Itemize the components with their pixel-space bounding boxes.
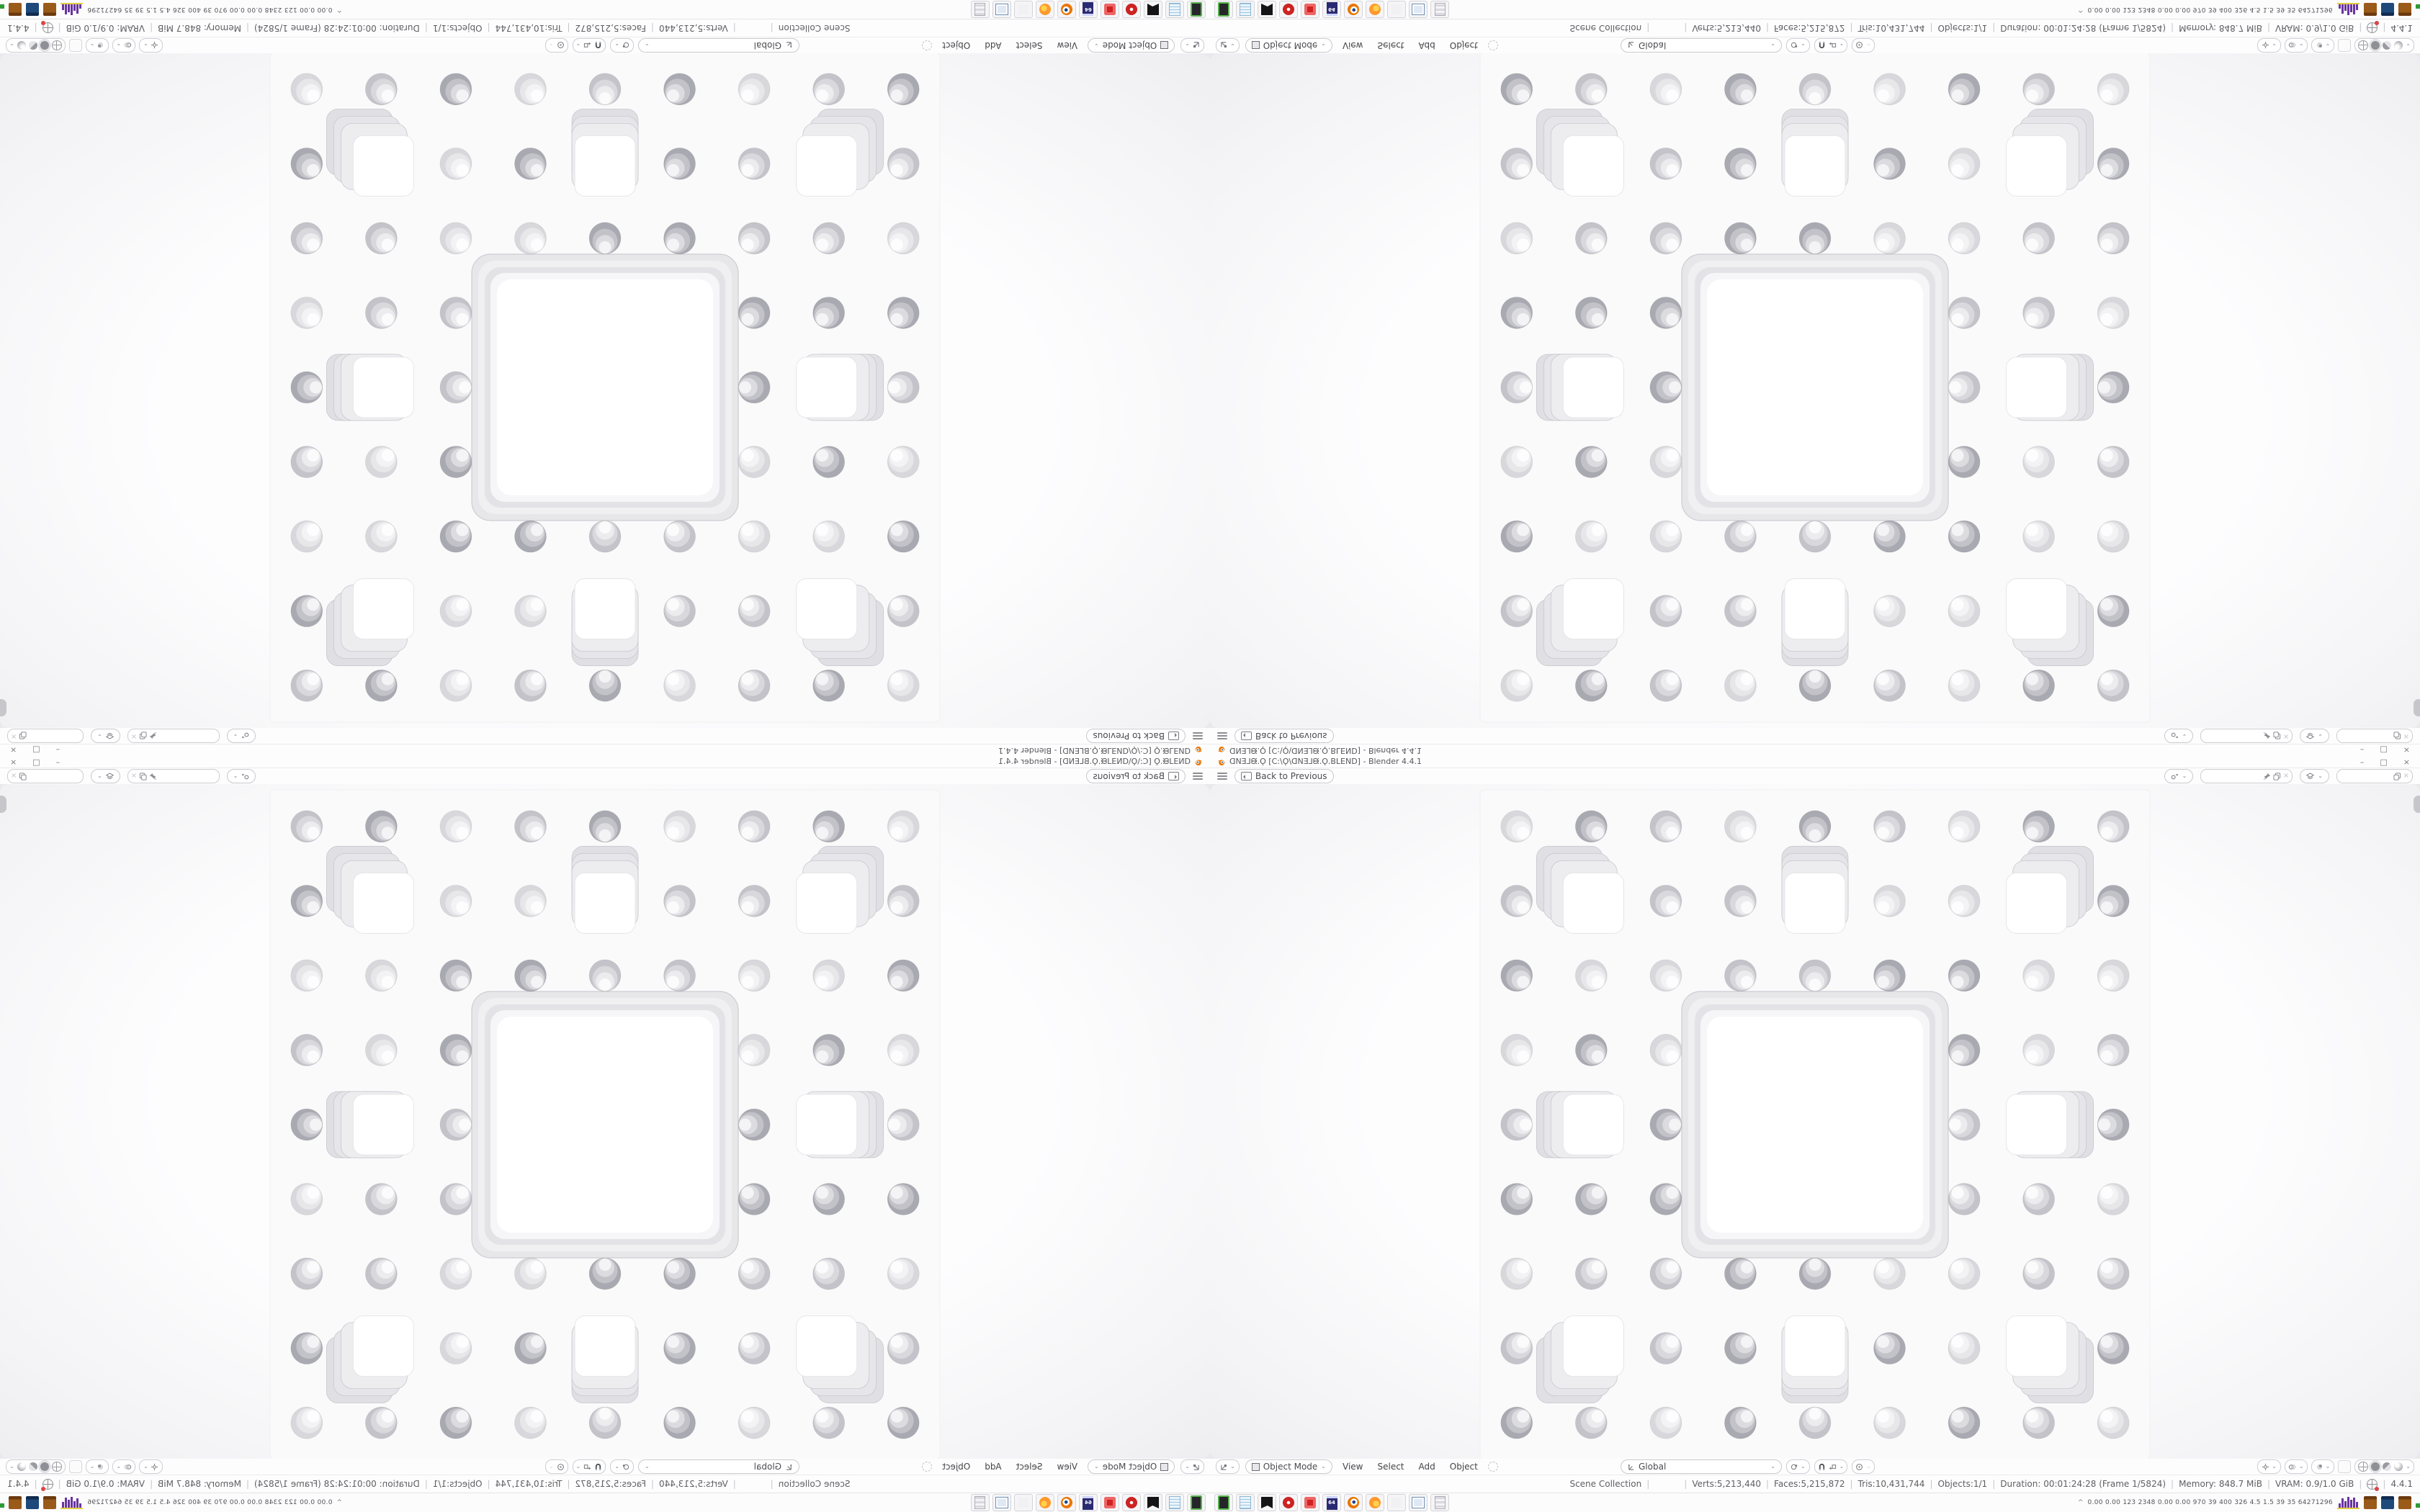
tray-histogram-icon[interactable] xyxy=(60,3,83,16)
minimize-button[interactable]: – xyxy=(56,747,60,755)
proportional-editing-icon[interactable] xyxy=(557,42,565,50)
blender-logo-icon xyxy=(1217,758,1225,766)
transform-orientation-dropdown[interactable]: Global ⌄ xyxy=(638,38,799,53)
shading-material-button[interactable] xyxy=(2383,1462,2391,1471)
tray-cpu-bars-icon[interactable] xyxy=(0,1498,4,1508)
window-title: ᗡNƎ⅃ᙠ.Ǫ [C:\Ǫ\ᗡNƎ⅃ᙠ.Ǫ.BLEND] - Blender 4… xyxy=(1229,745,1422,755)
close-button[interactable]: × xyxy=(2403,758,2410,766)
stat-duration: Duration: 00:01:24:28 (Frame 1/5824) xyxy=(254,1479,420,1489)
chevron-down-icon[interactable]: ⌄ xyxy=(2299,42,2304,48)
viewport-header: ⌄ Object Mode ⌄ View Select Add Object G… xyxy=(1210,37,2420,53)
tray-network-icon[interactable] xyxy=(2381,3,2394,16)
menu-view[interactable]: View xyxy=(1053,40,1082,50)
blender-taskbar-icon[interactable] xyxy=(1344,1494,1363,1511)
3d-viewport[interactable] xyxy=(1210,53,2420,728)
mode-dropdown[interactable]: Object Mode ⌄ xyxy=(1088,1459,1175,1474)
blender-topbar: Back to Previous ⌄ × ⌄ × xyxy=(1210,728,2420,744)
chevron-down-icon: ⌄ xyxy=(614,1464,619,1470)
pin-icon[interactable] xyxy=(2263,732,2271,740)
magnet-icon[interactable] xyxy=(1818,42,1826,50)
render-pass-toggle[interactable] xyxy=(69,39,82,52)
scene-name-field[interactable]: × xyxy=(127,729,220,743)
gizmos-dropdown[interactable]: ⌄ xyxy=(139,38,163,53)
stat-vram: VRAM: 0.9/1.0 GiB xyxy=(2275,23,2354,33)
chevron-down-icon[interactable]: ⌄ xyxy=(576,1464,581,1470)
tray-disk2-icon[interactable] xyxy=(9,3,22,16)
pivot-point-dropdown[interactable]: ⌄ xyxy=(610,1459,634,1474)
mode-transfer-icon[interactable] xyxy=(922,1462,932,1472)
maximize-button[interactable]: □ xyxy=(2380,758,2387,766)
separator: | xyxy=(150,23,153,33)
tray-expander-icon[interactable]: ^ xyxy=(336,6,342,13)
calculator-taskbar-icon[interactable] xyxy=(971,1494,990,1511)
maximize-button[interactable]: □ xyxy=(2380,747,2387,755)
calculator-taskbar-icon[interactable] xyxy=(1430,1,1449,18)
pivot-point-dropdown[interactable]: ⌄ xyxy=(1786,1459,1810,1474)
tray-histogram-icon[interactable] xyxy=(2337,1496,2359,1509)
chevron-down-icon[interactable]: ⌄ xyxy=(1866,42,1871,48)
mode-dropdown[interactable]: Object Mode ⌄ xyxy=(1245,1459,1332,1474)
gizmo-icon xyxy=(151,1463,158,1471)
tray-cpu-bars-icon[interactable] xyxy=(2416,4,2420,14)
chevron-down-icon: ⌄ xyxy=(1230,42,1235,48)
remove-layer-icon[interactable]: × xyxy=(2403,732,2409,739)
title-bar[interactable]: ᗡNƎ⅃ᙠ.Ǫ [C:\Ǫ\ᗡNƎ⅃ᙠ.Ǫ.BLEND] - Blender 4… xyxy=(0,756,1210,768)
chevron-down-icon[interactable]: ⌄ xyxy=(1866,1464,1871,1470)
maximize-button[interactable]: □ xyxy=(32,747,40,755)
xray-dropdown[interactable]: ⌄ xyxy=(86,1459,109,1474)
scene-name-field[interactable]: × xyxy=(2200,729,2293,743)
unlink-scene-icon[interactable]: × xyxy=(131,773,137,780)
shading-wireframe-button[interactable] xyxy=(2358,1462,2368,1472)
sidebar-collapse-arrow[interactable] xyxy=(0,796,6,813)
gizmos-dropdown[interactable]: ⌄ xyxy=(2257,1459,2281,1474)
blender-taskbar-icon[interactable] xyxy=(1057,1,1076,18)
menu-icon[interactable] xyxy=(1193,773,1203,780)
separator: | xyxy=(2171,23,2174,33)
system-monitor-taskbar-icon[interactable] xyxy=(1409,1,1428,18)
scene-icon xyxy=(2171,732,2179,740)
sidebar-collapse-arrow[interactable] xyxy=(2414,699,2420,716)
view-layer-icon xyxy=(2306,773,2314,780)
tray-cpu-bars-icon[interactable] xyxy=(0,4,4,14)
menu-select[interactable]: Select xyxy=(1011,40,1047,50)
blank-taskbar-icon[interactable] xyxy=(1387,1494,1406,1511)
viewport-header: ⌄ Object Mode ⌄ View Select Add Object G… xyxy=(0,37,1210,53)
new-layer-icon[interactable] xyxy=(2393,732,2401,740)
separator: | xyxy=(488,1479,490,1489)
view-layer-selector-button[interactable]: ⌄ xyxy=(2300,729,2329,743)
inkscape-taskbar-icon[interactable] xyxy=(1258,1,1276,18)
menu-view[interactable]: View xyxy=(1338,1462,1367,1472)
tray-network-icon[interactable] xyxy=(26,3,39,16)
firefox-taskbar-icon[interactable] xyxy=(1036,1494,1054,1511)
minimize-button[interactable]: – xyxy=(2360,758,2365,766)
shading-solid-button[interactable] xyxy=(40,1462,49,1471)
3d-viewport[interactable] xyxy=(0,784,1210,1459)
new-layer-icon[interactable] xyxy=(2393,773,2401,780)
close-button[interactable]: × xyxy=(10,747,17,755)
notepad-taskbar-icon[interactable] xyxy=(1236,1494,1255,1511)
shading-wireframe-button[interactable] xyxy=(52,40,62,50)
menger-sponge-render xyxy=(1479,789,2151,1459)
stat-faces: Faces:5,215,872 xyxy=(575,23,646,33)
stat-faces: Faces:5,215,872 xyxy=(1774,1479,1845,1489)
firefox-taskbar-icon[interactable] xyxy=(1366,1,1384,18)
separator: | xyxy=(1646,23,1649,33)
separator: | xyxy=(651,1479,654,1489)
menger-sponge-render xyxy=(269,53,941,723)
pin-icon[interactable] xyxy=(2263,773,2271,780)
editor-type-button[interactable]: ⌄ xyxy=(1216,38,1240,53)
viewport-header: ⌄ Object Mode ⌄ View Select Add Object G… xyxy=(1210,1459,2420,1475)
chevron-down-icon: ⌄ xyxy=(143,1464,148,1470)
blender-logo-icon xyxy=(1195,747,1203,755)
red-gear-taskbar-icon[interactable] xyxy=(1301,1,1319,18)
menu-select[interactable]: Select xyxy=(1373,40,1408,50)
red-gear-taskbar-icon[interactable] xyxy=(1301,1494,1319,1511)
os-taskbar: 64 ^ 0.00 0.00 123 2348 0.00 0.00 970 39… xyxy=(0,1493,1210,1512)
system-monitor-taskbar-icon[interactable] xyxy=(992,1494,1011,1511)
chevron-down-icon[interactable]: ⌄ xyxy=(576,42,581,48)
chevron-down-icon[interactable]: ⌄ xyxy=(1839,1464,1845,1470)
minimize-button[interactable]: – xyxy=(56,758,60,766)
menu-icon[interactable] xyxy=(1193,732,1203,739)
new-scene-icon[interactable] xyxy=(2273,732,2281,740)
tray-cpu-bars-icon[interactable] xyxy=(2416,1498,2420,1508)
inkscape-taskbar-icon[interactable] xyxy=(1144,1494,1162,1511)
shading-solid-button[interactable] xyxy=(2371,1462,2380,1471)
menu-add[interactable]: Add xyxy=(980,40,1005,50)
menu-select[interactable]: Select xyxy=(1011,1462,1047,1472)
blender-logo-icon xyxy=(1217,747,1225,755)
chevron-down-icon: ⌄ xyxy=(2318,733,2323,739)
shading-material-button[interactable] xyxy=(29,1462,37,1471)
tray-histogram-icon[interactable] xyxy=(60,1496,83,1509)
red-media-taskbar-icon[interactable] xyxy=(1122,1494,1141,1511)
tray-network-icon[interactable] xyxy=(2381,1496,2394,1509)
stat-tris: Tris:10,431,744 xyxy=(1858,1479,1925,1489)
render-pass-toggle[interactable] xyxy=(69,1460,82,1473)
mode-transfer-icon[interactable] xyxy=(1488,1462,1498,1472)
shading-rendered-button[interactable] xyxy=(17,1462,26,1471)
notepad-taskbar-icon[interactable] xyxy=(1165,1494,1184,1511)
back-to-previous-button[interactable]: Back to Previous xyxy=(1086,769,1186,783)
snap-target-icon[interactable] xyxy=(1829,42,1837,50)
xray-dropdown[interactable]: ⌄ xyxy=(2311,38,2335,53)
orientation-axes-icon xyxy=(785,42,793,50)
snap-target-icon[interactable] xyxy=(583,1463,591,1471)
back-to-previous-button[interactable]: Back to Previous xyxy=(1234,769,1334,783)
overlays-icon[interactable] xyxy=(124,1463,132,1471)
menu-add[interactable]: Add xyxy=(980,1462,1005,1472)
editor-3d-viewport-icon xyxy=(1192,1463,1200,1471)
unlink-scene-icon[interactable]: × xyxy=(2283,773,2289,780)
floppy-64-taskbar-icon[interactable]: 64 xyxy=(1079,1494,1098,1511)
view-layer-selector-button[interactable]: ⌄ xyxy=(91,729,120,743)
back-to-previous-label: Back to Previous xyxy=(1093,771,1165,781)
sidebar-collapse-arrow[interactable] xyxy=(2414,796,2420,813)
menu-view[interactable]: View xyxy=(1053,1462,1082,1472)
scene-name-field[interactable]: × xyxy=(127,769,220,783)
overlays-icon[interactable] xyxy=(124,42,132,50)
tray-disk2-icon[interactable] xyxy=(2398,1496,2411,1509)
close-button[interactable]: × xyxy=(10,758,17,766)
snap-target-icon[interactable] xyxy=(583,42,591,50)
view-layer-name-field[interactable]: × xyxy=(7,769,84,783)
3d-viewport[interactable] xyxy=(1210,784,2420,1459)
floppy-64-taskbar-icon[interactable]: 64 xyxy=(1079,1,1098,18)
mode-dropdown[interactable]: Object Mode ⌄ xyxy=(1088,38,1175,53)
notification-dot xyxy=(2375,1487,2379,1491)
audio-device-taskbar-icon[interactable] xyxy=(1214,1494,1233,1511)
new-layer-icon[interactable] xyxy=(19,773,27,780)
shading-solid-button[interactable] xyxy=(2371,41,2380,50)
xray-dropdown[interactable]: ⌄ xyxy=(86,38,109,53)
view-layer-selector-button[interactable]: ⌄ xyxy=(2300,769,2329,783)
shading-solid-button[interactable] xyxy=(40,41,49,50)
chevron-down-icon: ⌄ xyxy=(1321,1464,1326,1470)
separator: | xyxy=(1992,1479,1995,1489)
red-media-taskbar-icon[interactable] xyxy=(1122,1,1141,18)
mode-transfer-icon[interactable] xyxy=(922,40,932,50)
close-button[interactable]: × xyxy=(2403,747,2410,755)
menu-object[interactable]: Object xyxy=(938,1462,974,1472)
pin-icon[interactable] xyxy=(149,773,157,780)
view-layer-name-field[interactable]: × xyxy=(7,729,84,743)
menu-icon[interactable] xyxy=(1217,773,1227,780)
proportional-editing-icon[interactable] xyxy=(557,1463,565,1471)
tray-disk-icon[interactable] xyxy=(43,3,56,16)
separator: | xyxy=(733,1479,736,1489)
unlink-scene-icon[interactable]: × xyxy=(131,732,137,739)
menu-add[interactable]: Add xyxy=(1415,1462,1440,1472)
floppy-64-taskbar-icon[interactable]: 64 xyxy=(1322,1,1341,18)
shading-rendered-button[interactable] xyxy=(2394,41,2403,50)
view-layer-selector-button[interactable]: ⌄ xyxy=(91,769,120,783)
back-icon xyxy=(1168,772,1179,780)
menu-icon[interactable] xyxy=(1217,732,1227,739)
sidebar-collapse-arrow[interactable] xyxy=(0,699,6,716)
tray-disk-icon[interactable] xyxy=(43,1496,56,1509)
view-layer-name-field[interactable]: × xyxy=(2336,729,2413,743)
extensions-update-icon[interactable] xyxy=(2367,1479,2378,1490)
chevron-down-icon[interactable]: ⌄ xyxy=(9,42,14,48)
maximize-button[interactable]: □ xyxy=(32,758,40,766)
chevron-down-icon: ⌄ xyxy=(233,733,238,739)
scene-selector-button[interactable]: ⌄ xyxy=(227,769,256,783)
snap-target-icon[interactable] xyxy=(1829,1463,1837,1471)
remove-layer-icon[interactable]: × xyxy=(11,773,17,780)
unlink-scene-icon[interactable]: × xyxy=(2283,732,2289,739)
proportional-editing-icon[interactable] xyxy=(1855,1463,1863,1471)
overlays-icon[interactable] xyxy=(2288,1463,2296,1471)
scene-name-field[interactable]: × xyxy=(2200,769,2293,783)
separator: | xyxy=(1930,1479,1932,1489)
firefox-taskbar-icon[interactable] xyxy=(1366,1494,1384,1511)
menu-select[interactable]: Select xyxy=(1373,1462,1408,1472)
shading-material-button[interactable] xyxy=(29,41,37,50)
tray-expander-icon[interactable]: ^ xyxy=(2078,6,2084,13)
chevron-down-icon: ⌄ xyxy=(2326,1464,2331,1470)
blank-taskbar-icon[interactable] xyxy=(1387,1,1406,18)
menger-sponge-render xyxy=(269,789,941,1459)
render-pass-toggle[interactable] xyxy=(2338,1460,2351,1473)
separator: | xyxy=(1766,1479,1769,1489)
system-monitor-taskbar-icon[interactable] xyxy=(992,1,1011,18)
blender-version: 4.4.1 xyxy=(7,23,30,33)
chevron-down-icon[interactable]: ⌄ xyxy=(2299,1464,2304,1470)
title-bar[interactable]: ᗡNƎ⅃ᙠ.Ǫ [C:\Ǫ\ᗡNƎ⅃ᙠ.Ǫ.BLEND] - Blender 4… xyxy=(0,744,1210,756)
view-layer-name-field[interactable]: × xyxy=(2336,769,2413,783)
separator: | xyxy=(2359,23,2362,33)
remove-layer-icon[interactable]: × xyxy=(11,732,17,739)
tray-disk-icon[interactable] xyxy=(2364,1496,2377,1509)
chevron-down-icon[interactable]: ⌄ xyxy=(549,1464,554,1470)
blank-taskbar-icon[interactable] xyxy=(1014,1,1033,18)
inkscape-taskbar-icon[interactable] xyxy=(1144,1,1162,18)
scene-selector-button[interactable]: ⌄ xyxy=(227,729,256,743)
chevron-down-icon[interactable]: ⌄ xyxy=(116,42,121,48)
separator: | xyxy=(651,23,654,33)
blender-taskbar-icon[interactable] xyxy=(1057,1494,1076,1511)
red-media-taskbar-icon[interactable] xyxy=(1279,1494,1298,1511)
chevron-down-icon[interactable]: ⌄ xyxy=(1839,42,1845,48)
tray-expander-icon[interactable]: ^ xyxy=(336,1499,342,1506)
tray-network-icon[interactable] xyxy=(26,1496,39,1509)
extensions-update-icon[interactable] xyxy=(2367,23,2378,34)
menu-object[interactable]: Object xyxy=(1446,1462,1482,1472)
mode-transfer-icon[interactable] xyxy=(1488,40,1498,50)
magnet-icon[interactable] xyxy=(594,1463,602,1471)
audio-device-taskbar-icon[interactable] xyxy=(1214,1,1233,18)
new-layer-icon[interactable] xyxy=(19,732,27,740)
active-collection: Scene Collection xyxy=(1569,23,1641,33)
new-scene-icon[interactable] xyxy=(139,773,147,780)
chevron-down-icon: ⌄ xyxy=(1185,1464,1190,1470)
title-bar[interactable]: ᗡNƎ⅃ᙠ.Ǫ [C:\Ǫ\ᗡNƎ⅃ᙠ.Ǫ.BLEND] - Blender 4… xyxy=(1210,744,2420,756)
minimize-button[interactable]: – xyxy=(2360,747,2365,755)
remove-layer-icon[interactable]: × xyxy=(2403,773,2409,780)
notification-dot xyxy=(41,22,45,26)
render-pass-toggle[interactable] xyxy=(2338,39,2351,52)
menu-object[interactable]: Object xyxy=(1446,40,1482,50)
stat-objects: Objects:1/1 xyxy=(433,23,483,33)
chevron-down-icon[interactable]: ⌄ xyxy=(9,1464,14,1470)
taskbar-apps: 64 xyxy=(971,1494,1206,1511)
editor-type-button[interactable]: ⌄ xyxy=(1180,1459,1204,1474)
audio-device-taskbar-icon[interactable] xyxy=(1187,1,1206,18)
tray-disk-icon[interactable] xyxy=(2364,3,2377,16)
audio-device-taskbar-icon[interactable] xyxy=(1187,1494,1206,1511)
tray-disk2-icon[interactable] xyxy=(2398,3,2411,16)
back-to-previous-button[interactable]: Back to Previous xyxy=(1086,729,1186,743)
scene-selector-button[interactable]: ⌄ xyxy=(2164,729,2194,743)
title-bar[interactable]: ᗡNƎ⅃ᙠ.Ǫ [C:\Ǫ\ᗡNƎ⅃ᙠ.Ǫ.BLEND] - Blender 4… xyxy=(1210,756,2420,768)
gizmo-icon xyxy=(2262,1463,2269,1471)
tray-histogram-icon[interactable] xyxy=(2337,3,2359,16)
editor-3d-viewport-icon xyxy=(1220,1463,1228,1471)
tray-disk2-icon[interactable] xyxy=(9,1496,22,1509)
chevron-down-icon: ⌄ xyxy=(97,773,102,779)
chevron-down-icon[interactable]: ⌄ xyxy=(2406,42,2411,48)
new-scene-icon[interactable] xyxy=(139,732,147,740)
menu-add[interactable]: Add xyxy=(1415,40,1440,50)
shading-rendered-button[interactable] xyxy=(2394,1462,2403,1471)
blender-taskbar-icon[interactable] xyxy=(1344,1,1363,18)
floppy-64-taskbar-icon[interactable]: 64 xyxy=(1322,1494,1341,1511)
gizmos-dropdown[interactable]: ⌄ xyxy=(139,1459,163,1474)
editor-type-button[interactable]: ⌄ xyxy=(1180,38,1204,53)
magnet-icon[interactable] xyxy=(594,42,602,50)
gizmos-dropdown[interactable]: ⌄ xyxy=(2257,38,2281,53)
chevron-down-icon[interactable]: ⌄ xyxy=(549,42,554,48)
transform-orientation-dropdown[interactable]: Global ⌄ xyxy=(1621,38,1782,53)
notepad-taskbar-icon[interactable] xyxy=(1236,1,1255,18)
notepad-taskbar-icon[interactable] xyxy=(1165,1,1184,18)
firefox-taskbar-icon[interactable] xyxy=(1036,1,1054,18)
separator: | xyxy=(567,23,570,33)
shading-rendered-button[interactable] xyxy=(17,41,26,50)
new-scene-icon[interactable] xyxy=(2273,773,2281,780)
pin-icon[interactable] xyxy=(149,732,157,740)
shading-wireframe-button[interactable] xyxy=(52,1462,62,1472)
orientation-label: Global xyxy=(1639,1462,1666,1472)
overlays-group: ⌄ xyxy=(2285,1459,2308,1474)
chevron-down-icon: ⌄ xyxy=(1801,1464,1806,1470)
red-gear-taskbar-icon[interactable] xyxy=(1101,1494,1119,1511)
editor-type-button[interactable]: ⌄ xyxy=(1216,1459,1240,1474)
orientation-axes-icon xyxy=(1627,1463,1635,1471)
red-media-taskbar-icon[interactable] xyxy=(1279,1,1298,18)
calculator-taskbar-icon[interactable] xyxy=(1430,1494,1449,1511)
chevron-down-icon: ⌄ xyxy=(2272,1464,2277,1470)
red-gear-taskbar-icon[interactable] xyxy=(1101,1,1119,18)
scene-selector-button[interactable]: ⌄ xyxy=(2164,769,2194,783)
blender-version: 4.4.1 xyxy=(7,1479,30,1489)
blank-taskbar-icon[interactable] xyxy=(1014,1494,1033,1511)
pivot-point-dropdown[interactable]: ⌄ xyxy=(1786,38,1810,53)
blender-window: ᗡNƎ⅃ᙠ.Ǫ [C:\Ǫ\ᗡNƎ⅃ᙠ.Ǫ.BLEND] - Blender 4… xyxy=(0,0,1210,756)
system-monitor-taskbar-icon[interactable] xyxy=(1409,1494,1428,1511)
overlays-icon[interactable] xyxy=(2288,42,2296,50)
pivot-icon xyxy=(1791,42,1798,50)
tray-expander-icon[interactable]: ^ xyxy=(2078,1499,2084,1506)
overlays-group: ⌄ xyxy=(2285,38,2308,53)
transform-orientation-dropdown[interactable]: Global ⌄ xyxy=(638,1459,799,1474)
menu-view[interactable]: View xyxy=(1338,40,1367,50)
extensions-update-icon[interactable] xyxy=(42,1479,53,1490)
extensions-update-icon[interactable] xyxy=(42,23,53,34)
proportional-editing-icon[interactable] xyxy=(1855,42,1863,50)
xray-dropdown[interactable]: ⌄ xyxy=(2311,1459,2335,1474)
shading-wireframe-button[interactable] xyxy=(2358,40,2368,50)
transform-orientation-dropdown[interactable]: Global ⌄ xyxy=(1621,1459,1782,1474)
chevron-down-icon[interactable]: ⌄ xyxy=(2406,1464,2411,1470)
shading-material-button[interactable] xyxy=(2383,41,2391,50)
menu-object[interactable]: Object xyxy=(938,40,974,50)
magnet-icon[interactable] xyxy=(1818,1463,1826,1471)
mode-dropdown[interactable]: Object Mode ⌄ xyxy=(1245,38,1332,53)
back-to-previous-button[interactable]: Back to Previous xyxy=(1234,729,1334,743)
pivot-point-dropdown[interactable]: ⌄ xyxy=(610,38,634,53)
chevron-down-icon[interactable]: ⌄ xyxy=(116,1464,121,1470)
blender-topbar: Back to Previous ⌄ × ⌄ × xyxy=(1210,768,2420,784)
calculator-taskbar-icon[interactable] xyxy=(971,1,990,18)
inkscape-taskbar-icon[interactable] xyxy=(1258,1494,1276,1511)
system-tray: ^ 0.00 0.00 123 2348 0.00 0.00 970 39 40… xyxy=(0,3,342,16)
3d-viewport[interactable] xyxy=(0,53,1210,728)
